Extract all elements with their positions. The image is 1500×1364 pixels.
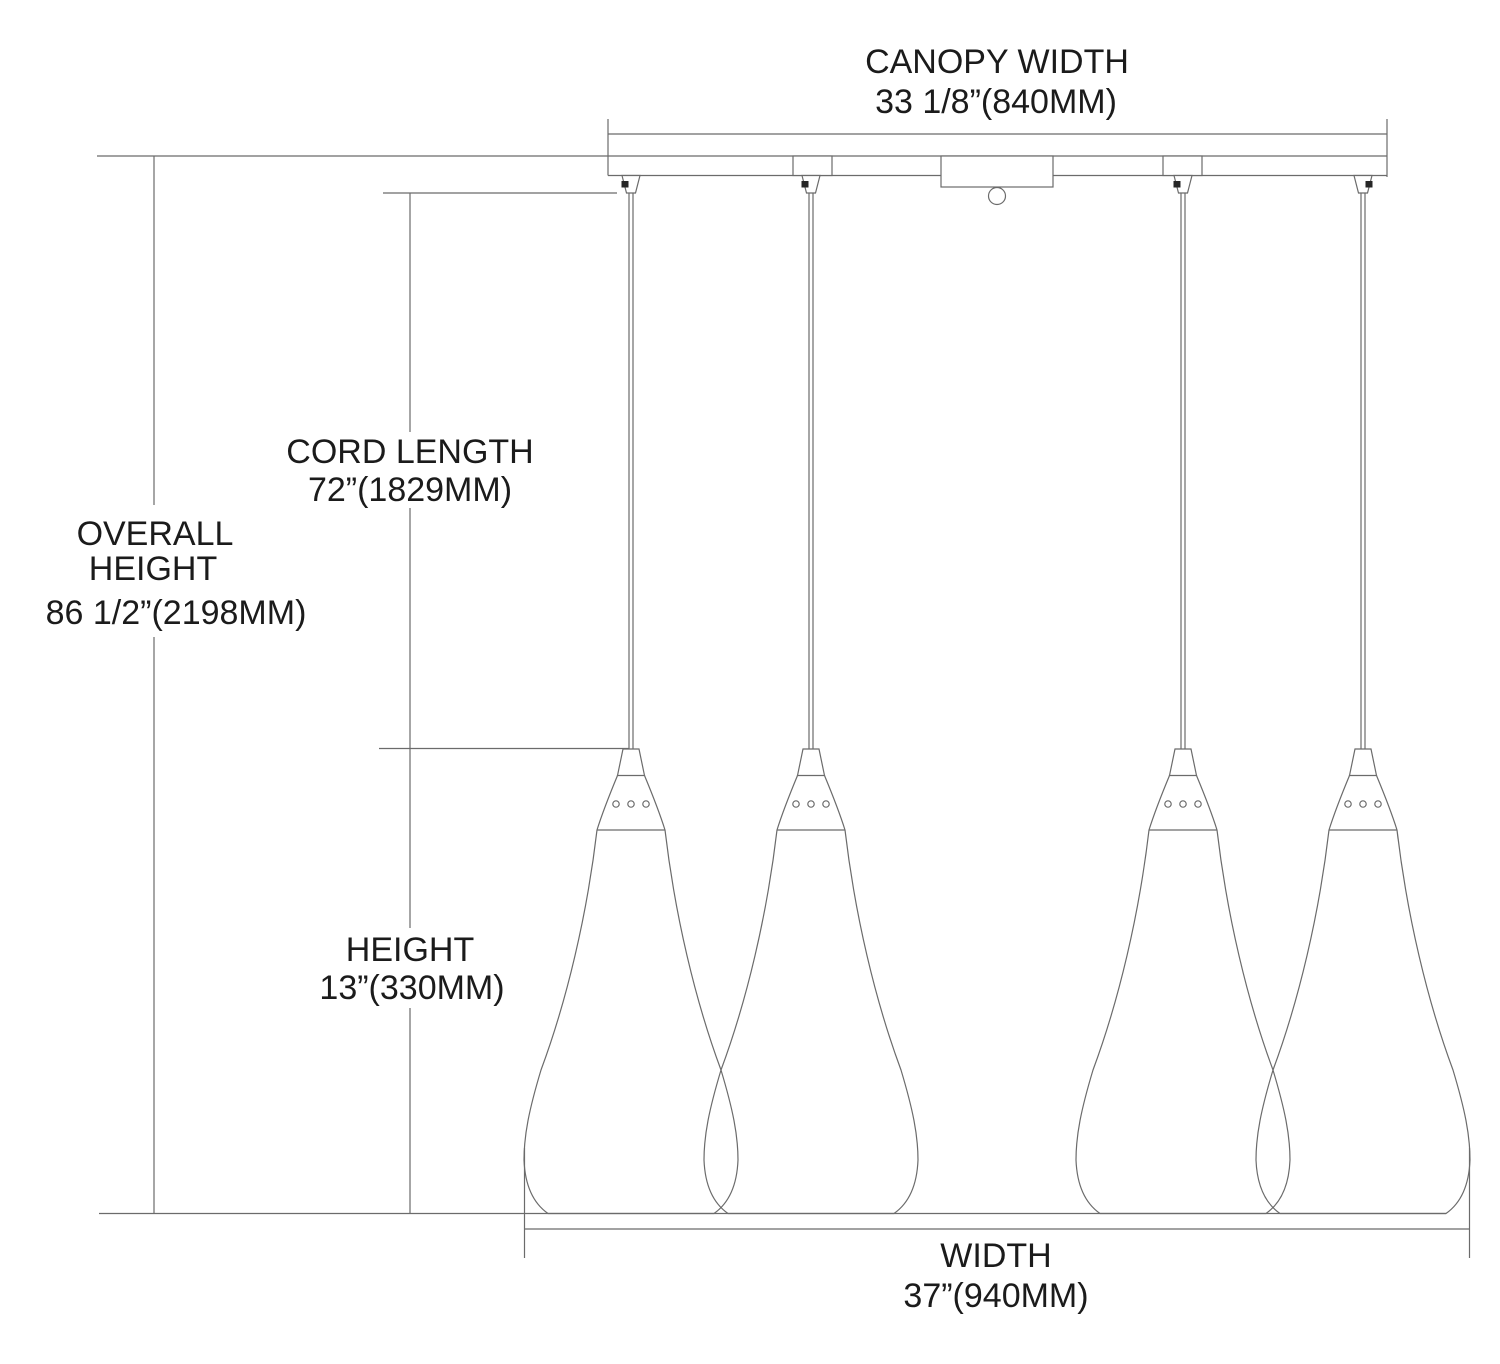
pendant-4-vent-hole [1375, 801, 1381, 807]
suspension-cords [629, 193, 1365, 749]
canopy-center-junction-box [941, 156, 1053, 187]
pendant-shades [524, 749, 1470, 1214]
canopy-block-cord-2 [793, 156, 832, 176]
center-finial-knob [989, 188, 1006, 205]
canopy-block-cord-3 [1163, 156, 1202, 176]
pendant-1-glass-outline [524, 776, 738, 1214]
overall-height-value: 86 1/2”(2198MM) [46, 594, 307, 632]
width-label: WIDTH [940, 1237, 1051, 1275]
grip-screw-2 [802, 181, 809, 188]
pendant-1-vent-hole [613, 801, 619, 807]
pendant-1 [524, 749, 738, 1214]
cord-length-value: 72”(1829MM) [308, 471, 512, 509]
grip-screw-1 [622, 181, 629, 188]
pendant-4 [1256, 749, 1470, 1214]
height-value: 13”(330MM) [319, 969, 504, 1007]
pendant-3-vent-hole [1180, 801, 1186, 807]
diagram-canvas: CANOPY WIDTH 33 1/8”(840MM) CORD LENGTH … [0, 0, 1500, 1364]
grip-screw-4 [1366, 181, 1373, 188]
pendant-4-vent-hole [1345, 801, 1351, 807]
canopy-width-label: CANOPY WIDTH [865, 43, 1129, 81]
pendant-4-glass-outline [1256, 776, 1470, 1214]
pendant-3-socket [1170, 749, 1197, 776]
pendant-1-vent-hole [643, 801, 649, 807]
pendant-2-glass-outline [704, 776, 918, 1214]
grip-screw-3 [1174, 181, 1181, 188]
height-label: HEIGHT [346, 931, 474, 969]
pendant-4-vent-hole [1360, 801, 1366, 807]
cord-length-label: CORD LENGTH [286, 433, 533, 471]
pendant-3 [1076, 749, 1290, 1214]
dimension-lines [99, 156, 1470, 1258]
pendant-3-vent-hole [1195, 801, 1201, 807]
pendant-2-vent-hole [808, 801, 814, 807]
canopy-bar [97, 119, 1387, 205]
overall-height-label-line1: OVERALL [77, 515, 234, 553]
pendant-2-vent-hole [823, 801, 829, 807]
dimension-labels: CANOPY WIDTH 33 1/8”(840MM) CORD LENGTH … [46, 43, 1129, 1315]
pendant-2-vent-hole [793, 801, 799, 807]
overall-height-label-line2: HEIGHT [89, 550, 217, 588]
pendant-2 [704, 749, 918, 1214]
pendant-dimension-diagram: CANOPY WIDTH 33 1/8”(840MM) CORD LENGTH … [0, 0, 1500, 1364]
pendant-3-glass-outline [1076, 776, 1290, 1214]
pendant-3-vent-hole [1165, 801, 1171, 807]
pendant-1-socket [618, 749, 645, 776]
pendant-1-vent-hole [628, 801, 634, 807]
pendant-2-socket [798, 749, 825, 776]
width-value: 37”(940MM) [903, 1277, 1088, 1315]
canopy-width-value: 33 1/8”(840MM) [875, 83, 1117, 121]
pendant-4-socket [1350, 749, 1377, 776]
